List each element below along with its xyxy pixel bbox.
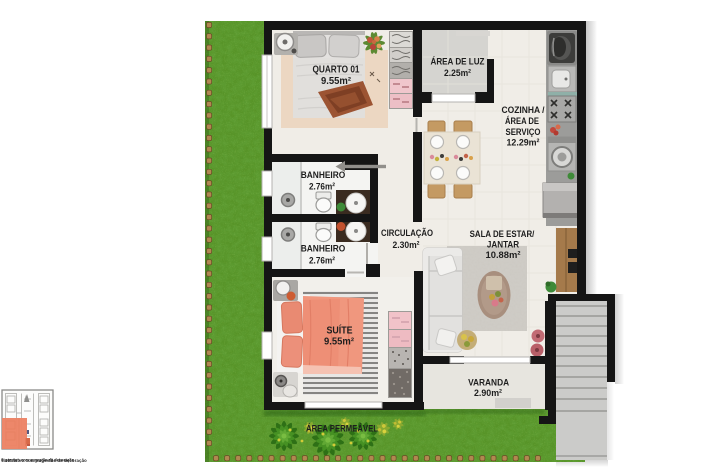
- svg-text:2.25m²: 2.25m²: [444, 68, 471, 79]
- svg-text:BANHEIRO: BANHEIRO: [301, 170, 346, 181]
- svg-text:12.29m²: 12.29m²: [507, 138, 540, 149]
- svg-text:COZINHA /: COZINHA /: [502, 105, 545, 116]
- svg-text:VARANDA: VARANDA: [468, 378, 509, 389]
- svg-text:Ilustrativo com sugestão de de: Ilustrativo com sugestão de decoração: [2, 458, 87, 463]
- svg-text:SUÍTE: SUÍTE: [327, 324, 353, 337]
- svg-text:JANTAR: JANTAR: [487, 239, 519, 250]
- svg-text:2.76m²: 2.76m²: [309, 182, 335, 193]
- svg-text:CIRCULAÇÃO: CIRCULAÇÃO: [381, 228, 433, 239]
- svg-text:9.55m²: 9.55m²: [324, 337, 355, 348]
- svg-text:2.30m²: 2.30m²: [393, 240, 420, 251]
- svg-text:2.76m²: 2.76m²: [309, 256, 335, 267]
- svg-text:BANHEIRO: BANHEIRO: [301, 244, 346, 255]
- svg-text:9.55m²: 9.55m²: [321, 76, 352, 87]
- svg-text:QUARTO 01: QUARTO 01: [313, 65, 360, 76]
- svg-text:10.88m²: 10.88m²: [486, 250, 521, 261]
- svg-text:ÁREA DE: ÁREA DE: [505, 116, 539, 127]
- svg-text:ÁREA DE LUZ: ÁREA DE LUZ: [431, 57, 485, 68]
- svg-text:SERVIÇO: SERVIÇO: [506, 127, 541, 138]
- svg-text:ÁREA PERMEÁVEL: ÁREA PERMEÁVEL: [306, 424, 378, 435]
- svg-text:2.90m²: 2.90m²: [474, 388, 502, 399]
